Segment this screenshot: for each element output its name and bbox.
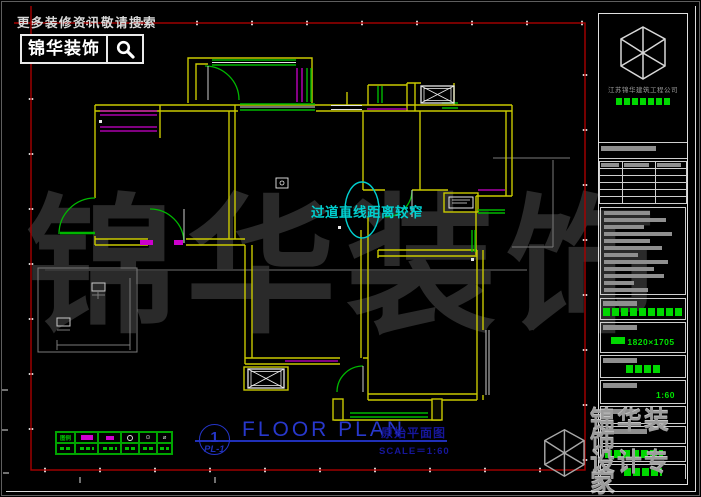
legend-row bbox=[56, 443, 172, 454]
legend-text-cell bbox=[98, 443, 121, 454]
bay-windows-layer bbox=[100, 68, 505, 361]
legend-header-cell: 图例 bbox=[56, 432, 75, 443]
title-block-strip bbox=[599, 146, 687, 159]
table-row bbox=[600, 190, 687, 197]
legend-text-cell bbox=[56, 443, 75, 454]
sheet-red-border bbox=[14, 6, 585, 470]
weak-power-symbol bbox=[106, 436, 114, 440]
brand-name: 锦华装饰 bbox=[590, 411, 695, 453]
company-name: 江苏锦华建筑工程公司 bbox=[599, 84, 687, 94]
glazing-layer bbox=[184, 63, 489, 396]
legend-symbol-cell bbox=[98, 432, 121, 443]
project-name-field bbox=[600, 298, 686, 320]
brand-watermark-row: 锦华装饰 设计专家 bbox=[543, 411, 695, 495]
annotation-text: 过道直线距离较窄 bbox=[311, 204, 423, 220]
outlet-symbol: ⌀ bbox=[163, 435, 167, 441]
cad-viewer-window: 锦 华 装 饰 bbox=[0, 0, 701, 497]
table-row bbox=[600, 162, 687, 169]
lamp-symbol bbox=[127, 435, 133, 441]
legend-text-cell bbox=[157, 443, 172, 454]
title-block-logo-section: 江苏锦华建筑工程公司 bbox=[599, 26, 687, 143]
company-cube-logo-icon bbox=[619, 26, 667, 80]
brand-tagline: 设计专家 bbox=[590, 453, 695, 495]
brand-logo-text: 锦华装饰 bbox=[22, 36, 106, 62]
area-value: 1820×1705 bbox=[627, 337, 674, 347]
legend-label: 图例 bbox=[60, 434, 71, 442]
search-icon bbox=[108, 36, 142, 62]
walls-layer bbox=[95, 58, 512, 420]
table-row bbox=[600, 197, 687, 204]
project-name-value bbox=[603, 308, 683, 316]
legend-row: 图例 ⊙ ⌀ bbox=[56, 432, 172, 443]
promo-slogan: 更多装修资讯敬请搜索 bbox=[17, 12, 157, 31]
legend-symbol-cell bbox=[121, 432, 139, 443]
designer-value bbox=[626, 365, 660, 373]
legend-text-cell bbox=[139, 443, 157, 454]
elevator-shaft-symbol bbox=[421, 86, 454, 103]
drawing-title-bar: 1 PL-1 FLOOR PLAN 原始平面图 SCALE＝1:60 bbox=[195, 420, 457, 462]
sheet-code: PL-1 bbox=[204, 444, 225, 455]
legend-table: 图例 ⊙ ⌀ bbox=[55, 431, 173, 455]
notes-section bbox=[600, 207, 686, 295]
strong-power-symbol bbox=[81, 435, 93, 440]
drawing-title-cn: 原始平面图 bbox=[381, 424, 446, 441]
table-row bbox=[600, 169, 687, 176]
toilet-symbol bbox=[276, 178, 288, 188]
duct-shaft-symbol bbox=[248, 369, 284, 388]
brand-cube-icon bbox=[543, 428, 586, 478]
legend-symbol-cell: ⊙ bbox=[139, 432, 157, 443]
brand-watermark: 锦华装饰 设计专家 WWW.JS-JINHUA.COM bbox=[543, 411, 695, 497]
socket-symbol bbox=[174, 240, 183, 245]
switch-symbol: ⊙ bbox=[145, 435, 150, 441]
stove-symbol bbox=[449, 197, 473, 208]
table-row bbox=[600, 176, 687, 183]
border-tick-marks bbox=[31, 23, 585, 470]
legend-symbol-cell: ⌀ bbox=[157, 432, 172, 443]
brand-watermark-texts: 锦华装饰 设计专家 bbox=[590, 411, 695, 495]
table-row bbox=[600, 183, 687, 190]
legend-text-cell bbox=[75, 443, 98, 454]
legend-symbol-cell bbox=[75, 432, 98, 443]
socket-symbol bbox=[140, 240, 153, 245]
drawing-scale: SCALE＝1:60 bbox=[379, 443, 450, 457]
revision-table bbox=[599, 161, 687, 204]
legend-text-cell bbox=[121, 443, 139, 454]
area-field: 1820×1705 bbox=[600, 322, 686, 353]
designer-field bbox=[600, 355, 686, 378]
detail-inset-drawing bbox=[38, 158, 570, 352]
company-hotline-text bbox=[616, 98, 670, 105]
scale-field: 1:60 bbox=[600, 380, 686, 404]
scale-value: 1:60 bbox=[601, 390, 685, 403]
brand-search-banner[interactable]: 锦华装饰 bbox=[20, 34, 144, 64]
